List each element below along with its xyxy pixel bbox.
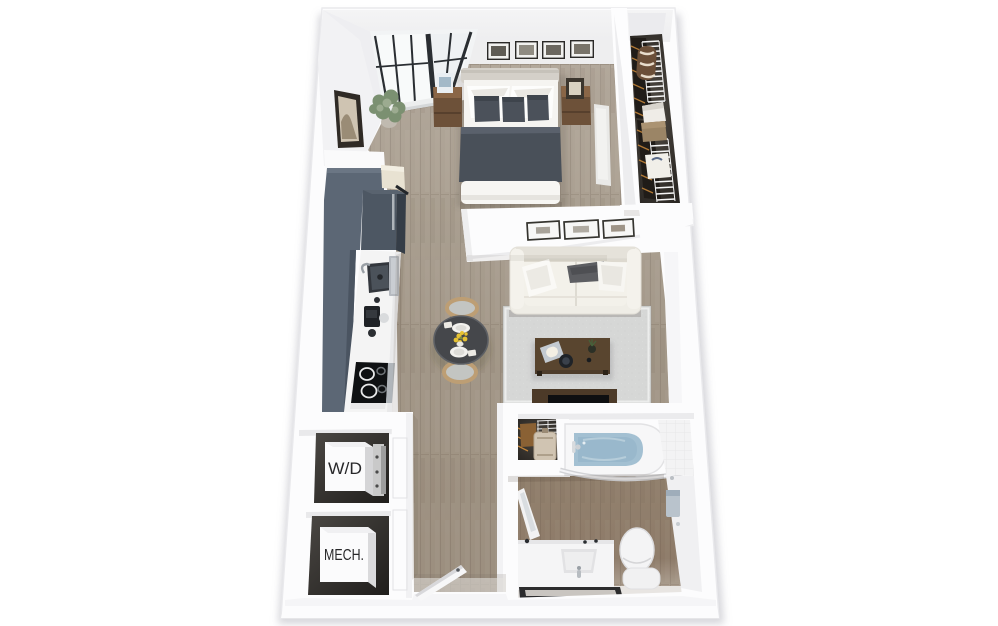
svg-text:W/D: W/D [328, 459, 362, 478]
svg-text:MECH.: MECH. [324, 547, 364, 564]
